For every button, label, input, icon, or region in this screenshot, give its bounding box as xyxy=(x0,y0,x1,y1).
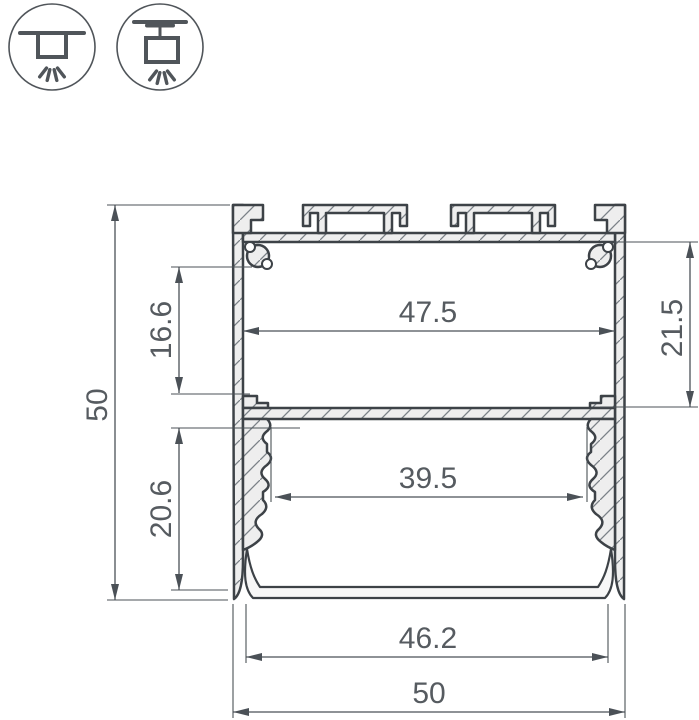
dim-label-diffuser-width: 46.2 xyxy=(399,622,457,655)
profile-box xyxy=(38,33,66,57)
dim-upper-chamber-width: 47.5 xyxy=(243,296,615,335)
profile-box xyxy=(146,38,178,62)
profile-cross-section xyxy=(233,205,625,599)
dim-lower-chamber-height: 20.6 xyxy=(145,428,300,590)
screw-boss-top-left xyxy=(245,242,272,269)
surface-mount-icon xyxy=(9,4,95,90)
dim-label-right-section-height: 21.5 xyxy=(656,299,689,357)
dim-overall-height: 50 xyxy=(81,205,230,600)
drawing-svg: 50 16.6 20.6 xyxy=(0,0,699,720)
top-web xyxy=(243,233,615,242)
lower-clips-right xyxy=(587,419,615,550)
screw-boss-top-right xyxy=(586,242,613,269)
divider-left-foot xyxy=(243,396,268,408)
technical-drawing-canvas: 50 16.6 20.6 xyxy=(0,0,699,720)
dim-label-overall-height: 50 xyxy=(81,388,114,421)
light-rays xyxy=(150,71,175,83)
light-rays xyxy=(40,68,65,80)
right-wall xyxy=(615,205,625,599)
dim-lower-chamber-width: 39.5 xyxy=(271,427,587,502)
lower-clips-left xyxy=(243,419,271,550)
dim-label-upper-chamber-height: 16.6 xyxy=(145,301,178,359)
middle-divider-plate xyxy=(243,408,615,419)
dim-diffuser-width: 46.2 xyxy=(246,604,608,663)
dim-label-lower-chamber-height: 20.6 xyxy=(145,480,178,538)
dim-label-lower-chamber-width: 39.5 xyxy=(399,462,457,495)
top-left-cap xyxy=(233,205,263,233)
top-tab-1 xyxy=(303,205,407,233)
left-wall xyxy=(233,205,243,599)
dim-label-upper-chamber-width: 47.5 xyxy=(399,296,457,329)
divider-right-foot xyxy=(590,396,615,408)
pendant-mount-icon xyxy=(117,4,203,90)
diffuser-cover xyxy=(245,549,613,598)
dim-label-overall-width: 50 xyxy=(412,677,445,710)
icon-circle xyxy=(9,4,95,90)
top-right-cap xyxy=(595,205,625,233)
top-tab-2 xyxy=(451,205,555,233)
